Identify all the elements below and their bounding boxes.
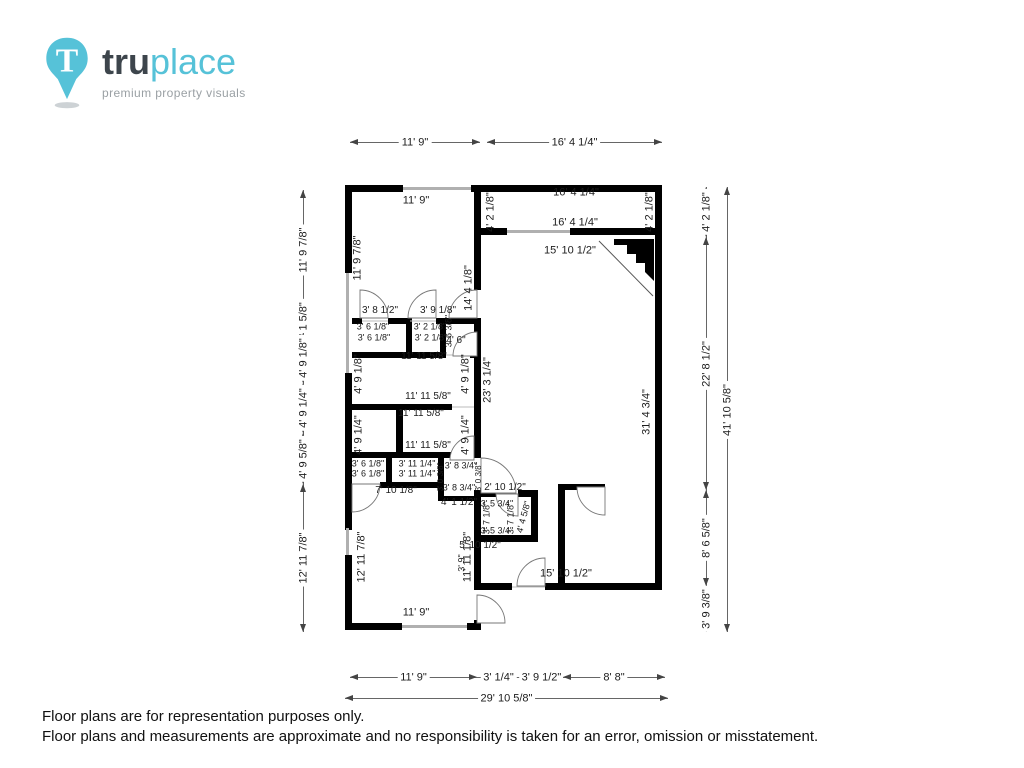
dimension-label: 4' 9 1/8" [354,354,365,394]
dimension-label: 16' 4 1/4" [552,218,598,229]
dimension-label: 4' 2 1/8" [645,192,656,232]
dimension-label: 11' 9 7/8" [353,236,364,281]
dimension-label: 7' 10 1/8" [375,486,417,496]
dimension-label: 3' 6 1/8" [352,460,384,469]
dimension-label: 12' 11 7/8" [357,531,368,582]
dimension-label: 15' 10 1/2" [540,569,592,580]
dimension-label: 11' 11 5/8" [398,409,444,419]
dimension-label: 16' 4 1/4" [553,188,599,199]
dimension-label: 4' 9 1/4" [354,415,365,455]
dimension-label: 3' 11 1/4" [399,460,436,469]
dimension-label: 31' 4 3/4" [642,389,653,435]
dimension-label: 11' 11 5/8" [401,352,447,362]
floorplan-page: { "logo": { "brand_bold": "tru", "brand_… [0,0,1024,768]
dimension-label: 4' 9 1/4" [461,415,472,455]
dimension-label: 11' 9" [403,608,430,619]
dimension-label: 3' 2 1/8" [415,334,447,343]
disclaimer-line-2: Floor plans and measurements are approxi… [42,728,818,745]
dimension-labels-layer: 11' 9"16' 4 1/4"4' 2 1/8"4' 2 1/8"16' 4 … [0,0,1024,768]
disclaimer-line-1: Floor plans are for representation purpo… [42,708,818,725]
dimension-label: 3' 5 3/4" [481,527,513,536]
dimension-label: 4' 4 5/8" [515,500,532,534]
dimension-label: 15' 10 1/2" [544,246,596,257]
dimension-label: 3' 6 1/8" [357,323,389,332]
dimension-label: 4' 6" [446,336,465,346]
dimension-label: 3' 8 3/4" [445,462,477,471]
dimension-label: 11' 11 5/8" [405,441,451,451]
dimension-label: 3' 2 1/8" [414,323,446,332]
dimension-label: 3' 11 1/4" [399,470,436,479]
dimension-label: 11' 9" [403,196,430,207]
dimension-label: 23' 3 1/4" [483,357,494,403]
dimension-label: 11' 11 1/8" [463,532,474,582]
dimension-label: 3' 8 1/2" [362,306,398,316]
dimension-label: 3' 8 3/4" [443,484,475,493]
dimension-label: 4' 1 1/2" [441,498,477,508]
dimension-label: 14' 4 1/8" [464,265,475,311]
dimension-label: 3' 6 1/8" [352,470,384,479]
dimension-label: 3' 6 1/8" [358,334,390,343]
dimension-label: 4' 9 1/8" [461,354,472,394]
dimension-label: 4' 2 1/8" [486,192,497,232]
dimension-label: 3' 0 3/8" [475,463,483,492]
disclaimer: Floor plans are for representation purpo… [42,708,818,749]
dimension-label: 2' 10 1/2" [484,483,526,493]
dimension-label: 11' 11 5/8" [405,392,451,402]
